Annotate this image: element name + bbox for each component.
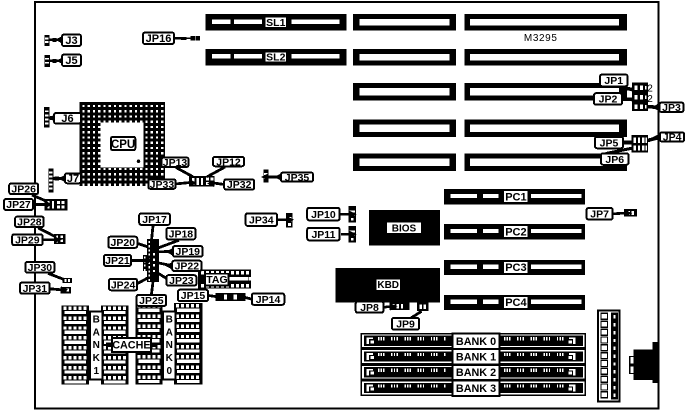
svg-text:PC2: PC2 [505,226,526,238]
svg-text:2: 2 [647,94,653,105]
svg-text:JP12: JP12 [216,156,241,168]
svg-text:1: 1 [94,366,100,377]
svg-text:0: 0 [167,366,173,377]
svg-text:A: A [93,327,100,338]
svg-text:JP18: JP18 [169,228,194,240]
svg-text:JP15: JP15 [181,290,206,302]
svg-text:JP16: JP16 [146,33,172,45]
svg-text:SL1: SL1 [266,17,285,29]
svg-text:JP28: JP28 [17,217,42,229]
svg-text:BANK 2: BANK 2 [456,367,496,379]
svg-text:JP35: JP35 [285,172,310,184]
svg-text:JP30: JP30 [28,262,53,274]
svg-text:J6: J6 [61,113,73,125]
svg-text:BANK 3: BANK 3 [456,383,496,395]
svg-text:BIOS: BIOS [392,223,417,234]
svg-text:JP10: JP10 [311,209,336,221]
svg-text:CPU: CPU [111,139,135,151]
svg-text:JP6: JP6 [605,154,624,166]
svg-text:JP29: JP29 [15,234,40,246]
svg-text:SL2: SL2 [266,52,285,64]
svg-text:JP13: JP13 [163,157,188,169]
svg-text:JP20: JP20 [111,237,136,249]
svg-text:PC4: PC4 [505,297,527,309]
svg-text:JP4: JP4 [663,132,682,144]
svg-text:JP34: JP34 [249,214,274,226]
svg-text:JP27: JP27 [6,199,31,211]
svg-text:JP32: JP32 [227,179,252,191]
svg-text:N: N [166,340,173,351]
svg-text:JP19: JP19 [175,246,200,258]
svg-text:JP14: JP14 [256,294,281,306]
svg-text:K: K [93,353,101,364]
svg-text:JP31: JP31 [23,283,48,295]
svg-text:J5: J5 [65,55,77,67]
svg-text:JP11: JP11 [311,229,335,241]
svg-text:JP22: JP22 [175,261,200,273]
svg-text:PC1: PC1 [505,191,526,203]
svg-text:B: B [93,315,100,326]
svg-text:CACHE: CACHE [112,340,150,352]
svg-text:KBD: KBD [377,280,399,291]
svg-text:JP21: JP21 [105,255,130,267]
svg-text:K: K [166,353,174,364]
svg-text:TAG: TAG [206,274,227,286]
svg-text:JP8: JP8 [360,302,379,314]
svg-text:PC3: PC3 [505,262,526,274]
svg-text:JP24: JP24 [111,279,136,291]
svg-text:JP1: JP1 [604,75,623,87]
svg-text:J3: J3 [65,35,77,47]
svg-text:A: A [166,327,173,338]
svg-text:JP26: JP26 [11,183,36,195]
svg-text:JP3: JP3 [662,102,681,114]
svg-text:JP2: JP2 [599,94,618,106]
svg-text:JP9: JP9 [396,318,415,330]
svg-text:BANK 1: BANK 1 [456,352,496,364]
svg-text:JP17: JP17 [142,214,167,226]
svg-text:JP5: JP5 [600,137,619,149]
svg-text:J7: J7 [67,173,79,185]
svg-text:JP23: JP23 [169,275,194,287]
svg-text:JP25: JP25 [139,295,164,307]
svg-text:M3295: M3295 [524,33,558,44]
svg-text:N: N [93,340,100,351]
svg-text:B: B [166,315,173,326]
svg-text:JP7: JP7 [590,208,609,220]
svg-text:BANK 0: BANK 0 [456,336,496,348]
svg-text:JP33: JP33 [150,179,175,191]
